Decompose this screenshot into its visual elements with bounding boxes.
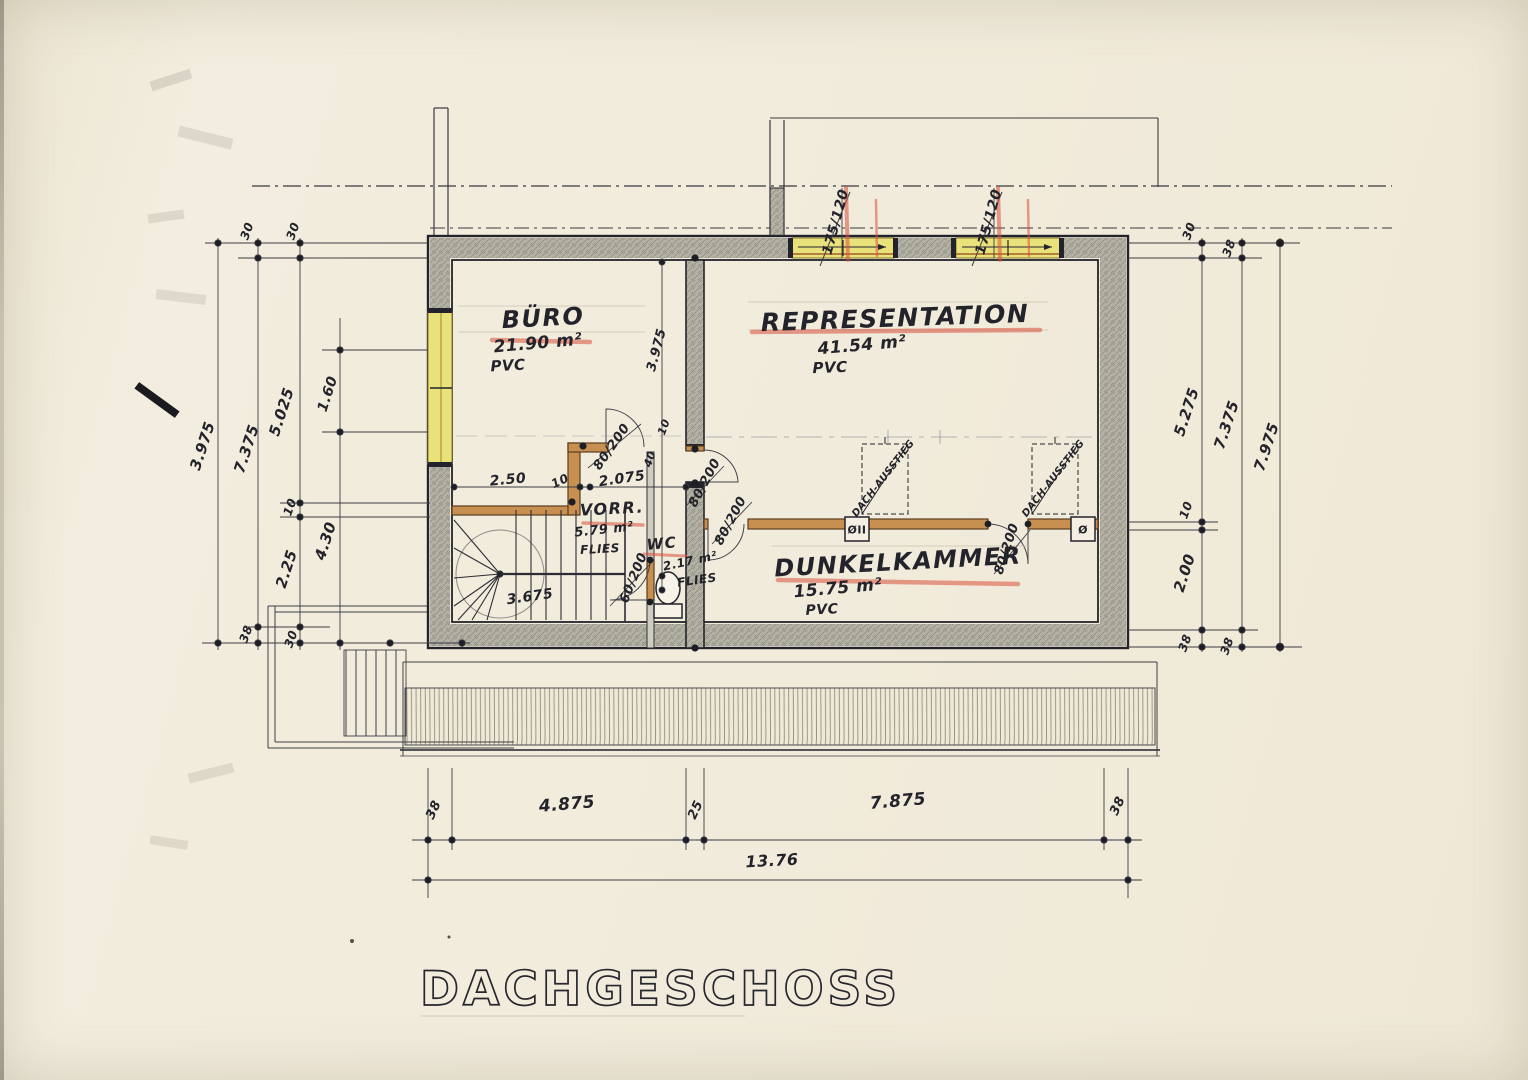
room-name-wc: WC [646, 535, 678, 553]
room-floor-representation: PVC [812, 360, 848, 376]
interior-wall [686, 260, 704, 648]
room-floor-vorraum: FLIES [580, 542, 620, 556]
room-name-buero: BÜRO [501, 304, 585, 332]
roof-access-hatches [862, 437, 1078, 514]
drawing-title: DACHGESCHOSS [420, 962, 901, 1017]
pencil-guides [420, 302, 1096, 1016]
vent-label: ØII [847, 525, 866, 536]
exterior-walls [428, 236, 1128, 648]
dimension-label: 13.76 [745, 852, 799, 871]
dimension-label: 4.875 [538, 794, 596, 816]
dimension-chain-bottom [412, 768, 1142, 898]
dimension-label: 2.50 [489, 471, 527, 488]
dimension-label: 7.875 [869, 791, 927, 813]
roof-reference-lines [252, 108, 1392, 236]
room-name-vorraum: VORR. [580, 499, 645, 518]
room-floor-dunkelkammer: PVC [805, 602, 839, 618]
blueprint-paper: BÜRO 21.90 m² PVC REPRESENTATION 41.54 m… [0, 0, 1528, 1080]
vent-label: Ø [1078, 525, 1088, 536]
room-floor-buero: PVC [490, 358, 526, 375]
floor-plan-drawing [0, 0, 1528, 1080]
